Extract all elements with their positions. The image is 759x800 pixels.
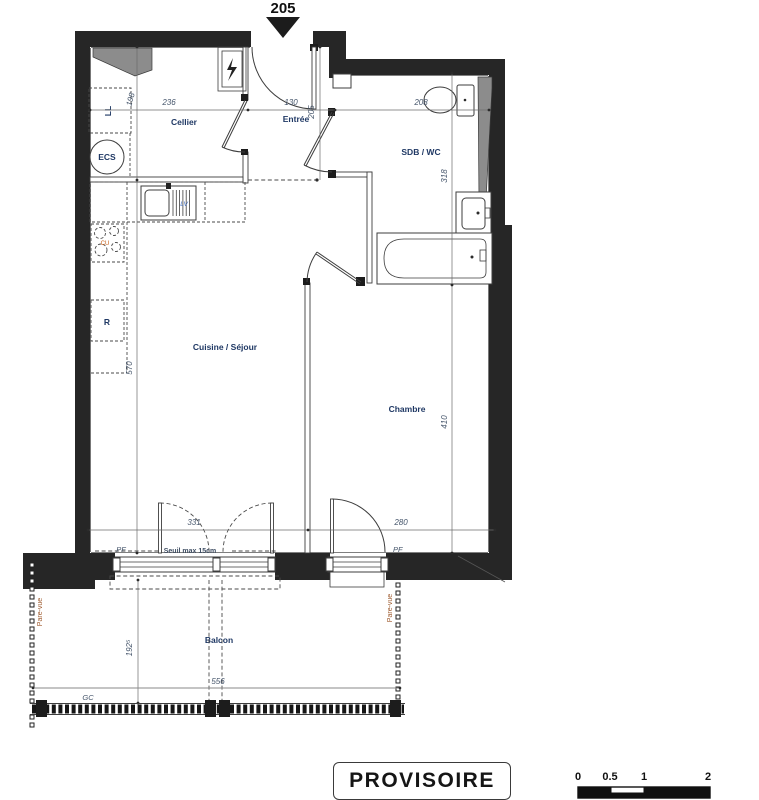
water-heater-icon: ECS — [90, 140, 124, 174]
cooktop-icon: CU — [91, 224, 124, 262]
scale-tick-1: 1 — [641, 771, 647, 783]
cellier-door — [222, 100, 247, 152]
room-label-cellier: Cellier — [171, 117, 198, 127]
exterior-walls — [23, 31, 512, 589]
lot-number: 205 — [270, 0, 295, 17]
dim-chambre-height: 410 — [440, 415, 449, 429]
pare-vue-label-right: Pare-vue — [387, 594, 394, 623]
duct-top-left — [93, 48, 152, 76]
dim-balcon-depth: 192⁵ — [125, 639, 134, 656]
chambre-door — [307, 252, 361, 284]
dim-sejour-height: 570 — [125, 361, 134, 375]
pare-vue-label-left: Pare-vue — [37, 598, 44, 627]
scale-tick-0: 0 — [575, 771, 581, 783]
dimension-lines — [87, 46, 497, 705]
dim-chambre-width: 280 — [393, 518, 408, 527]
bathtub-icon — [377, 233, 492, 284]
entry-marker: 205 — [266, 0, 300, 38]
dim-cellier-width: 236 — [161, 98, 176, 107]
window-chambre — [326, 499, 388, 587]
pf-label-left: PF — [116, 545, 126, 554]
fridge-label: R — [104, 317, 110, 327]
room-label-chambre: Chambre — [389, 404, 426, 414]
pf-label-right: PF — [393, 545, 403, 554]
scale-bar: 0 0.5 1 2 — [575, 771, 711, 798]
cooktop-label: CU — [101, 241, 110, 247]
electrical-panel-icon — [218, 47, 246, 91]
room-label-entree: Entrée — [283, 114, 310, 124]
entry-arrow-icon — [266, 17, 300, 38]
dim-sdb-width: 208 — [413, 98, 428, 107]
dim-cellier-height: 198 — [125, 91, 137, 107]
kitchen-sink-icon: LV — [141, 183, 196, 220]
dim-sejour-width: 331 — [187, 518, 200, 527]
washing-machine-label: LL — [103, 106, 113, 116]
gc-label: GC — [82, 693, 94, 702]
room-label-sejour: Cuisine / Séjour — [193, 342, 258, 352]
provisoire-stamp: PROVISOIRE — [333, 762, 511, 800]
railing — [30, 700, 405, 717]
water-heater-label: ECS — [98, 152, 116, 162]
dim-entree-width: 130 — [284, 98, 298, 107]
floor-plan: 205 — [0, 0, 759, 800]
fridge-box: R — [91, 300, 124, 341]
lightning-icon — [227, 58, 237, 81]
scale-tick-2: 2 — [705, 771, 711, 783]
washbasin-icon — [456, 192, 491, 234]
niche — [333, 74, 351, 88]
dishwasher-label: LV — [180, 201, 188, 208]
dim-sdb-height: 318 — [440, 169, 449, 183]
scale-tick-05: 0.5 — [602, 771, 617, 783]
seuil-label: Seuil max 15cm — [164, 548, 217, 555]
dim-balcon-width: 556 — [211, 677, 225, 686]
room-label-sdb: SDB / WC — [401, 147, 440, 157]
provisoire-label: PROVISOIRE — [349, 769, 495, 793]
toilet-icon — [424, 85, 474, 116]
